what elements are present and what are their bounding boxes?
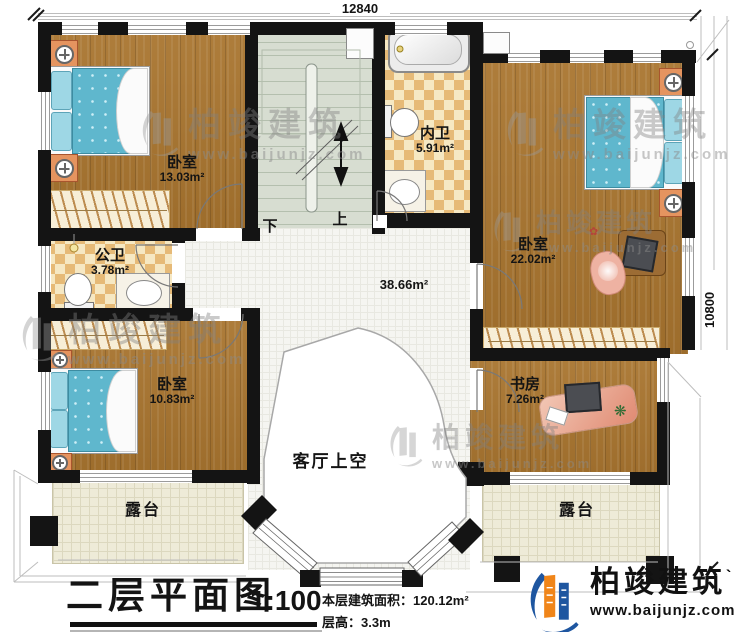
bed-blanket [116,68,148,154]
room-label-inner-bath: 内卫 [404,126,466,142]
room-area-inner-bath: 5.91m² [404,142,466,155]
door-gap-bedroom-bl [193,308,241,321]
sink-icon [389,179,420,205]
pillow [51,71,72,110]
floor-hall-lower [248,330,470,570]
room-label-bedroom-bottom-left: 卧室 [140,377,204,393]
hall-area: 38.66m² [366,278,442,292]
wall-right [682,50,695,350]
toilet-icon [64,273,92,306]
window [570,50,604,63]
lamp-icon [664,194,683,213]
wall-bedroom-bl-right [247,308,260,484]
window [508,50,540,63]
terrace-left-label: 露台 [108,503,178,520]
terrace-right-label: 露台 [542,503,612,520]
lamp-icon [55,45,74,64]
room-label-bedroom-right: 卧室 [498,237,568,253]
window [38,92,51,150]
company-logo-brand: 柏竣建筑 [590,568,726,598]
void-label: 客厅上空 [278,453,383,471]
flower-icon: ✿ [589,227,598,238]
terrace-post [30,516,58,546]
bathtub-icon [394,34,462,65]
window [510,472,630,485]
window [395,22,447,35]
room-area-bedroom-bottom-left: 10.83m² [137,393,207,406]
room-area-study: 7.26m² [491,393,559,406]
wall-niche [346,28,374,59]
company-logo: 柏竣建筑` www.baijunjz.com [526,568,735,632]
wall-innerbath-bottom [385,213,475,228]
room-label-public-bath: 公卫 [80,248,140,264]
floor-terrace-left [52,478,244,564]
window [633,50,661,63]
door-gap-bedroom-right [470,263,483,309]
plant-icon: ❋ [614,404,627,419]
wall-niche [483,32,510,54]
computer-icon [564,382,602,413]
light-glow [598,261,618,281]
room-label-study: 书房 [493,377,557,393]
window [38,372,51,430]
company-logo-url: www.baijunjz.com [590,602,735,619]
window [682,238,695,296]
bed-blanket [106,370,136,452]
room-area-public-bath: 3.78m² [78,264,142,277]
window [80,470,192,483]
stairs-down-label: 下 [256,219,284,235]
door-gap-bedroom-tl [196,228,242,241]
floor-staircase [248,30,374,230]
bed-blanket [630,97,664,188]
door-gap-public-bath [172,243,185,283]
dimension-top: 12840 [330,1,390,16]
floor-area-text: 本层建筑面积：120.12m² [322,594,502,608]
sink-icon [126,280,162,306]
company-logo-icon [526,568,582,632]
lamp-icon [55,159,74,178]
wall-hall-terrace-stub [458,462,484,486]
title-underline [70,622,317,627]
door-gap-study [470,368,483,410]
plan-scale: 1:100 [250,586,325,615]
lamp-icon [664,73,683,92]
pillow [50,372,68,410]
window [657,358,670,402]
wardrobe [48,320,167,350]
pillow [664,142,684,184]
window [128,22,186,35]
floor-terrace-right [482,482,660,562]
terrace-post [494,556,520,582]
pillow [50,410,68,448]
room-area-bedroom-top-left: 13.03m² [148,171,216,184]
wall-stair-left [245,22,258,234]
floor-height-text: 层高：3.3m [322,616,462,630]
window [682,96,695,182]
company-logo-mark: ` [726,568,731,586]
window [208,22,250,35]
floor-plan: ✿ ❋ [0,0,750,640]
lamp-icon [52,352,68,368]
room-label-bedroom-top-left: 卧室 [150,155,214,171]
wardrobe [50,190,170,230]
pillow [51,112,72,151]
window [62,22,98,35]
title-underline-thin [70,630,322,632]
window [38,246,51,292]
room-area-bedroom-right: 22.02m² [496,253,570,266]
wall-study-top [470,348,670,361]
lamp-icon [52,455,68,471]
dimension-right: 10800 [702,270,722,350]
door-gap-inner-bath [373,215,387,228]
pillow [664,99,684,141]
stairs-up-label: 上 [326,212,354,228]
computer-icon [621,235,658,272]
